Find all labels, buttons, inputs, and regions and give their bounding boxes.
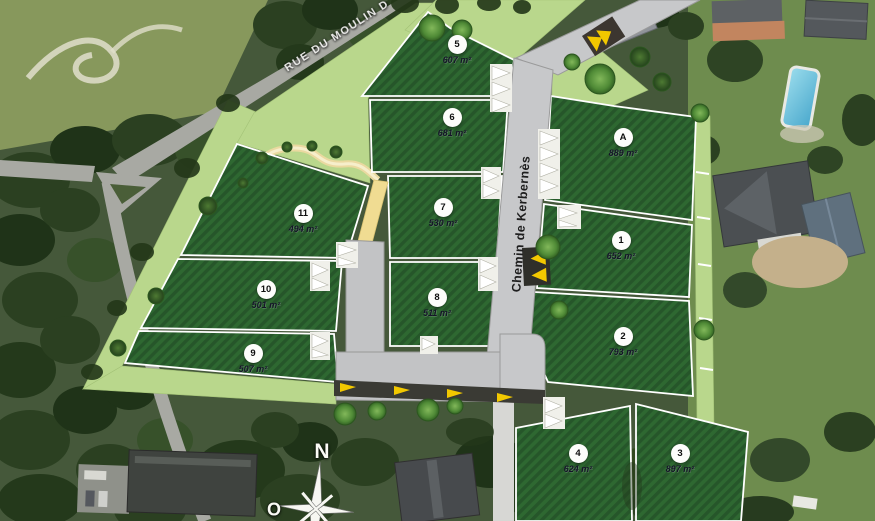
building-bottom-center [395,453,480,521]
lot-number-badge: 3 [671,444,690,463]
lot-number-badge: 5 [448,35,467,54]
site-plan-map: RUE DU MOULIN D Chemin de Kerbernès 5 60… [0,0,875,521]
lot-number-badge: 7 [434,198,453,217]
lot-area-text: 607 m² [419,55,495,65]
pool-deck [780,125,824,143]
compass-west-label: O [267,500,281,521]
lot-label-9[interactable]: 9 507 m² [215,344,291,374]
lot-area-text: 889 m² [585,148,661,158]
lot-area-text: 793 m² [585,347,661,357]
path-stub [493,400,514,521]
compass-north-label: N [314,440,329,464]
lot-label-10[interactable]: 10 501 m² [228,280,304,310]
lot-label-6[interactable]: 6 681 m² [414,108,490,138]
lot-label-4[interactable]: 4 624 m² [540,444,616,474]
sandy-driveway [752,236,848,288]
lot-label-A[interactable]: A 889 m² [585,128,661,158]
lot-area-text: 624 m² [540,464,616,474]
lot-label-7[interactable]: 7 530 m² [405,198,481,228]
lot-area-text: 530 m² [405,218,481,228]
lot-A-parcel [545,96,696,220]
house-top-2 [804,0,868,39]
lot-number-badge: 10 [257,280,276,299]
lot-area-text: 652 m² [583,251,659,261]
lot-number-badge: 11 [294,204,313,223]
map-graphics [0,0,875,521]
lot-label-2[interactable]: 2 793 m² [585,327,661,357]
lot-label-5[interactable]: 5 607 m² [419,35,495,65]
lot-label-11[interactable]: 11 494 m² [265,204,341,234]
lot-area-text: 494 m² [265,224,341,234]
lot-number-badge: 6 [443,108,462,127]
lot-area-text: 897 m² [642,464,718,474]
house-top-1 [712,0,785,41]
lot-number-badge: 2 [614,327,633,346]
lot-label-8[interactable]: 8 511 m² [399,288,475,318]
lot-number-badge: A [614,128,633,147]
lot-area-text: 507 m² [215,364,291,374]
lot-number-badge: 1 [612,231,631,250]
lot-number-badge: 8 [428,288,447,307]
lot-area-text: 511 m² [399,308,475,318]
lot-number-badge: 4 [569,444,588,463]
lot-area-text: 501 m² [228,300,304,310]
lot-number-badge: 9 [244,344,263,363]
lot-area-text: 681 m² [414,128,490,138]
lot-label-1[interactable]: 1 652 m² [583,231,659,261]
lot-label-3[interactable]: 3 897 m² [642,444,718,474]
